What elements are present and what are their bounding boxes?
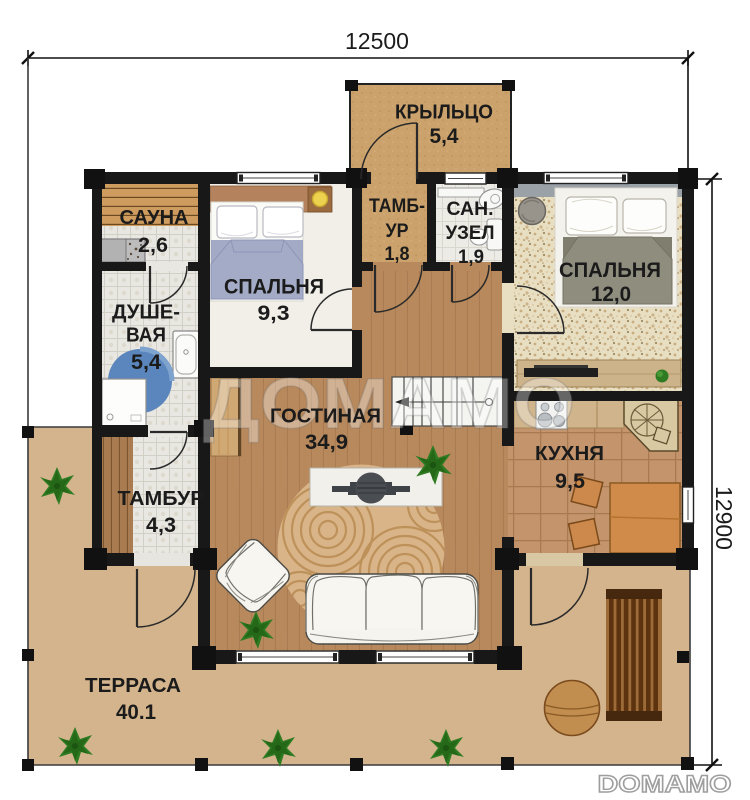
svg-text:40.1: 40.1 bbox=[116, 701, 156, 724]
svg-text:12900: 12900 bbox=[711, 486, 737, 550]
svg-text:5,4: 5,4 bbox=[131, 351, 161, 374]
svg-text:СПАЛЬНЯ: СПАЛЬНЯ bbox=[559, 259, 661, 282]
svg-text:ГОСТИНАЯ: ГОСТИНАЯ bbox=[270, 406, 381, 428]
svg-text:9,5: 9,5 bbox=[555, 470, 585, 493]
svg-text:12,0: 12,0 bbox=[591, 283, 631, 306]
svg-text:КРЫЛЬЦО: КРЫЛЬЦО bbox=[395, 102, 493, 124]
svg-text:5,4: 5,4 bbox=[430, 125, 459, 148]
svg-text:САУНА: САУНА bbox=[120, 207, 189, 229]
svg-text:ДОМАМО: ДОМАМО bbox=[203, 365, 575, 444]
svg-text:12500: 12500 bbox=[345, 28, 409, 54]
svg-text:УР: УР bbox=[386, 221, 409, 242]
svg-text:САН.: САН. bbox=[447, 199, 494, 220]
svg-text:УЗЕЛ: УЗЕЛ bbox=[446, 223, 495, 244]
svg-text:9,3: 9,3 bbox=[258, 302, 290, 325]
svg-text:2,6: 2,6 bbox=[138, 234, 168, 257]
svg-text:1,9: 1,9 bbox=[458, 247, 484, 268]
svg-text:СПАЛЬНЯ: СПАЛЬНЯ bbox=[224, 276, 324, 299]
svg-text:1,8: 1,8 bbox=[385, 244, 410, 265]
svg-text:ТАМБУР: ТАМБУР bbox=[118, 488, 205, 510]
svg-text:4,3: 4,3 bbox=[146, 514, 176, 537]
svg-text:ТАМБ-: ТАМБ- bbox=[369, 196, 425, 217]
svg-text:КУХНЯ: КУХНЯ bbox=[535, 443, 604, 465]
svg-text:ДУШЕ-: ДУШЕ- bbox=[112, 302, 180, 324]
svg-text:34,9: 34,9 bbox=[305, 431, 348, 454]
svg-text:ТЕРРАСА: ТЕРРАСА bbox=[85, 675, 181, 697]
svg-text:DOMAMO: DOMAMO bbox=[598, 771, 732, 798]
svg-text:ВАЯ: ВАЯ bbox=[126, 325, 166, 347]
